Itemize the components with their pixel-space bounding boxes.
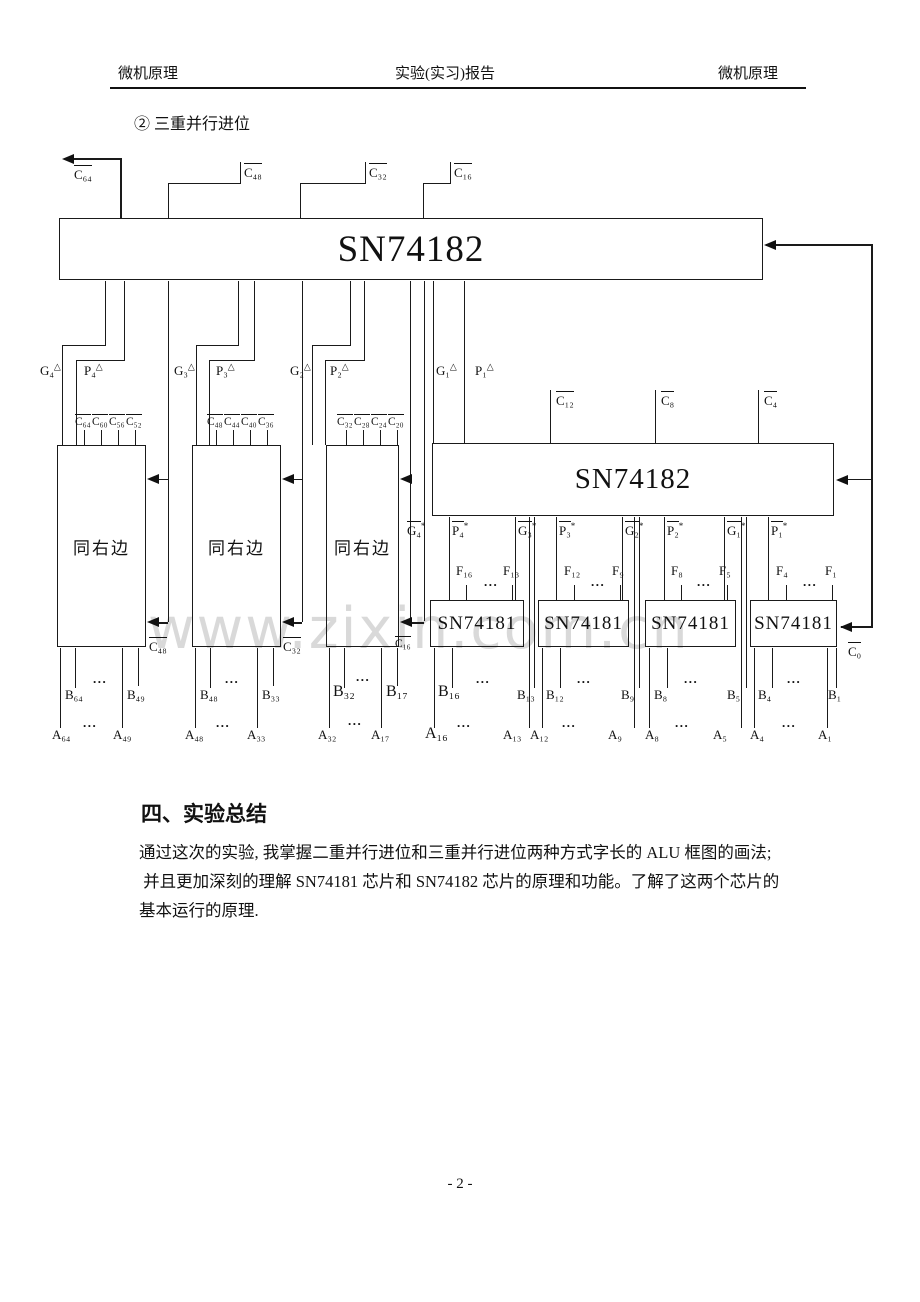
signal-label-p2: P₂△ <box>330 364 349 377</box>
wire-segment <box>397 648 398 686</box>
signal-label-f4: F₄ <box>776 564 788 577</box>
wire-segment <box>70 158 120 160</box>
wire-segment <box>325 360 326 445</box>
signal-text: B₃₂ <box>333 684 355 700</box>
signal-label-p1s: P₁* <box>771 521 787 537</box>
wire-segment <box>196 345 197 445</box>
chip-label: SN74181 <box>544 613 623 635</box>
signal-text: C₈ <box>661 391 674 407</box>
signal-text: G₃ <box>174 364 188 377</box>
chip-label: SN74181 <box>651 613 730 635</box>
signal-text: F₈ <box>671 564 683 577</box>
wire-segment <box>741 517 742 728</box>
block-label: 同右边 <box>208 534 265 559</box>
page-number: - 2 - <box>0 1176 920 1193</box>
signal-label-b32: B₃₂ <box>333 684 355 700</box>
header-right: 微机原理 <box>718 62 778 83</box>
chip-sn74181-2: SN74181 <box>538 600 629 647</box>
signal-text: G₄ <box>407 521 421 537</box>
wire-segment <box>550 390 551 443</box>
arrowhead-icon <box>147 474 159 484</box>
signal-label-b48: B₄₈ <box>200 688 218 701</box>
signal-text: P₁ <box>771 521 783 537</box>
signal-label-c56: C₅₆ <box>109 414 125 428</box>
wire-segment <box>620 585 621 600</box>
signal-mark: △ <box>304 362 311 372</box>
signal-text: F₅ <box>719 564 731 577</box>
signal-label-a32: A₃₂ <box>318 728 336 741</box>
signal-label-p4: P₄△ <box>84 364 103 377</box>
signal-label-c16t: C₁₆ <box>454 163 472 179</box>
wire-segment <box>423 183 451 184</box>
signal-label-b1: B₁ <box>828 688 841 701</box>
wire-segment <box>238 281 239 346</box>
wire-segment <box>786 585 787 600</box>
signal-label-c20: C₂₀ <box>388 414 404 428</box>
wire-segment <box>350 281 351 346</box>
wire-segment <box>233 430 234 445</box>
arrowhead-icon <box>836 475 848 485</box>
signal-text: P₃ <box>559 521 571 537</box>
signal-text: C₃₂ <box>337 414 353 428</box>
signal-label-c8: C₈ <box>661 391 674 407</box>
wire-segment <box>649 648 650 728</box>
wire-segment <box>836 648 837 688</box>
wire-segment <box>534 517 535 688</box>
signal-text: F₄ <box>776 564 788 577</box>
wire-segment <box>135 430 136 445</box>
wire-segment <box>312 345 313 445</box>
signal-text: C₂₄ <box>371 414 387 428</box>
wire-segment <box>380 430 381 445</box>
wire-segment <box>766 244 872 246</box>
signal-label-p3s: P₃* <box>559 521 575 537</box>
wire-segment <box>556 517 557 600</box>
signal-text: B₁₂ <box>546 688 564 701</box>
signal-text: A₁₃ <box>503 728 521 741</box>
signal-text: B₁ <box>828 688 841 701</box>
signal-label-a64: A₆₄ <box>52 728 70 741</box>
wire-segment <box>75 648 76 688</box>
signal-text: B₈ <box>654 688 667 701</box>
wire-segment <box>452 648 453 688</box>
ellipsis-label: ... <box>83 716 97 729</box>
wire-segment <box>449 517 450 600</box>
block-label: 同右边 <box>73 534 130 559</box>
wire-segment <box>138 648 139 686</box>
signal-mark: * <box>571 521 576 531</box>
signal-text: C₄ <box>764 391 777 407</box>
chip-sn74181-3: SN74181 <box>645 600 736 647</box>
arrowhead-icon <box>400 474 412 484</box>
wire-segment <box>464 281 465 443</box>
signal-text: B₅ <box>727 688 740 701</box>
wire-segment <box>312 345 351 346</box>
signal-text: G₁ <box>727 521 741 537</box>
signal-text: A₁₆ <box>425 726 448 742</box>
signal-label-a49: A₄₉ <box>113 728 131 741</box>
ellipsis-label: ... <box>803 575 817 588</box>
ellipsis-label: ... <box>484 575 498 588</box>
arrowhead-icon <box>62 154 74 164</box>
signal-text: B₆₄ <box>65 688 83 701</box>
wire-segment <box>168 183 169 218</box>
wire-segment <box>210 648 211 688</box>
wire-segment <box>62 345 106 346</box>
signal-label-c28: C₂₈ <box>354 414 370 428</box>
signal-text: A₈ <box>645 728 659 741</box>
signal-text: C₂₀ <box>388 414 404 428</box>
signal-text: A₃₂ <box>318 728 336 741</box>
signal-label-c40: C₄₀ <box>241 414 257 428</box>
wire-segment <box>300 183 301 218</box>
wire-segment <box>293 479 302 480</box>
ellipsis-label: ... <box>476 672 490 685</box>
signal-label-a4: A₄ <box>750 728 764 741</box>
wire-segment <box>466 585 467 600</box>
signal-label-p2s: P₂* <box>667 521 683 537</box>
header-center: 实验(实习)报告 <box>395 62 495 83</box>
wire-segment <box>62 345 63 445</box>
signal-label-b16: B₁₆ <box>438 684 460 700</box>
ellipsis-label: ... <box>356 670 370 683</box>
wire-segment <box>758 390 759 443</box>
wire-segment <box>450 162 451 183</box>
wire-segment <box>209 360 210 445</box>
signal-text: F₉ <box>612 564 624 577</box>
wire-segment <box>273 648 274 686</box>
signal-text: C₄₀ <box>241 414 257 428</box>
chip-label: SN74182 <box>338 228 485 271</box>
arrowhead-icon <box>147 617 159 627</box>
signal-label-c64: C₆₄ <box>74 165 92 181</box>
signal-label-a33: A₃₃ <box>247 728 265 741</box>
signal-label-f8: F₈ <box>671 564 683 577</box>
wire-segment <box>302 281 303 622</box>
signal-text: A₁ <box>818 728 832 741</box>
arrowhead-icon <box>840 622 852 632</box>
ellipsis-label: ... <box>697 575 711 588</box>
wire-segment <box>344 648 345 688</box>
signal-label-b13: B₁₃ <box>517 688 535 701</box>
signal-mark: * <box>639 521 644 531</box>
signal-text: C₆₄ <box>74 165 92 181</box>
wire-segment <box>832 585 833 600</box>
wire-segment <box>681 585 682 600</box>
signal-text: B₁₆ <box>438 684 460 700</box>
signal-label-a16: A₁₆ <box>425 726 448 742</box>
signal-text: G₃ <box>518 521 532 537</box>
signal-label-c24: C₂₄ <box>371 414 387 428</box>
wire-segment <box>397 430 398 445</box>
wire-segment <box>168 183 241 184</box>
wire-segment <box>574 585 575 600</box>
signal-mark: * <box>679 521 684 531</box>
subheading: ② 三重并行进位 <box>134 110 250 134</box>
signal-text: G₂ <box>290 364 304 377</box>
wire-segment <box>655 390 656 443</box>
signal-text: A₄₈ <box>185 728 203 741</box>
wire-segment <box>410 281 411 622</box>
wire-segment <box>411 622 424 624</box>
ellipsis-label: ... <box>348 714 362 727</box>
wire-segment <box>365 162 366 183</box>
signal-label-f16: F₁₆ <box>456 564 472 577</box>
signal-text: F₁₆ <box>456 564 472 577</box>
wire-segment <box>196 345 239 346</box>
arrowhead-icon <box>764 240 776 250</box>
wire-segment <box>300 183 366 184</box>
wire-segment <box>124 281 125 361</box>
header-left: 微机原理 <box>118 62 178 83</box>
signal-label-b33: B₃₃ <box>262 688 280 701</box>
signal-mark: * <box>783 521 788 531</box>
signal-text: A₃₃ <box>247 728 265 741</box>
signal-text: C₅₂ <box>126 414 142 428</box>
signal-text: P₄ <box>452 521 464 537</box>
signal-label-c32t: C₃₂ <box>369 163 387 179</box>
signal-text: A₁₇ <box>371 728 389 741</box>
summary-line: 通过这次的实验, 我掌握二重并行进位和三重并行进位两种方式字长的 ALU 框图的… <box>139 838 819 867</box>
wire-segment <box>754 648 755 728</box>
signal-label-g3: G₃△ <box>174 364 195 377</box>
signal-label-c48t: C₄₈ <box>244 163 262 179</box>
signal-label-c12: C₁₂ <box>556 391 574 407</box>
signal-text: A₄ <box>750 728 764 741</box>
signal-label-b8: B₈ <box>654 688 667 701</box>
signal-label-g4s: G₄* <box>407 521 425 537</box>
header-rule <box>110 87 806 89</box>
signal-text: G₁ <box>436 364 450 377</box>
signal-label-b64: B₆₄ <box>65 688 83 701</box>
signal-text: C₁₆ <box>454 163 472 179</box>
signal-text: C₄₄ <box>224 414 240 428</box>
signal-text: C₃₂ <box>283 637 301 653</box>
chip-label: SN74181 <box>754 613 833 635</box>
wire-segment <box>515 517 516 600</box>
signal-mark: △ <box>188 362 195 372</box>
signal-label-g3s: G₃* <box>518 521 536 537</box>
signal-label-g2s: G₂* <box>625 521 643 537</box>
signal-text: A₄₉ <box>113 728 131 741</box>
wire-segment <box>105 281 106 346</box>
wire-segment <box>120 158 122 218</box>
signal-label-a9: A₉ <box>608 728 622 741</box>
signal-text: A₆₄ <box>52 728 70 741</box>
wire-segment <box>76 360 77 445</box>
signal-text: P₁ <box>475 364 487 377</box>
wire-segment <box>216 430 217 445</box>
signal-text: B₉ <box>621 688 634 701</box>
wire-segment <box>329 648 330 728</box>
chip-sn74182-top: SN74182 <box>59 218 763 280</box>
signal-text: A₁₂ <box>530 728 548 741</box>
signal-text: B₁₇ <box>386 684 408 700</box>
wire-segment <box>122 648 123 728</box>
ellipsis-label: ... <box>216 716 230 729</box>
ellipsis-label: ... <box>591 575 605 588</box>
signal-text: C₆₀ <box>92 414 108 428</box>
signal-text: P₄ <box>84 364 96 377</box>
wire-segment <box>433 281 434 443</box>
signal-text: P₂ <box>667 521 679 537</box>
chip-sn74181-1: SN74181 <box>430 600 524 647</box>
signal-label-a8: A₈ <box>645 728 659 741</box>
signal-label-f5: F₅ <box>719 564 731 577</box>
signal-label-b5: B₅ <box>727 688 740 701</box>
signal-label-c16a: C₁₆ <box>395 636 411 650</box>
ellipsis-label: ... <box>457 716 471 729</box>
signal-text: C₄₈ <box>244 163 262 179</box>
ellipsis-label: ... <box>684 672 698 685</box>
signal-text: P₃ <box>216 364 228 377</box>
wire-segment <box>267 430 268 445</box>
signal-label-c32b: C₃₂ <box>337 414 353 428</box>
signal-text: A₅ <box>713 728 727 741</box>
ellipsis-label: ... <box>225 672 239 685</box>
signal-label-a5: A₅ <box>713 728 727 741</box>
signal-label-b49: B₄₉ <box>127 688 145 701</box>
signal-label-c4: C₄ <box>764 391 777 407</box>
signal-mark: △ <box>487 362 494 372</box>
signal-label-c48a: C₄₈ <box>149 637 167 653</box>
signal-label-c44: C₄₄ <box>224 414 240 428</box>
arrowhead-icon <box>400 617 412 627</box>
signal-mark: * <box>741 521 746 531</box>
signal-label-b17: B₁₇ <box>386 684 408 700</box>
ellipsis-label: ... <box>577 672 591 685</box>
signal-label-b4: B₄ <box>758 688 771 701</box>
wire-segment <box>727 585 728 600</box>
signal-text: B₄₈ <box>200 688 218 701</box>
wire-segment <box>434 648 435 728</box>
wire-segment <box>746 517 747 688</box>
signal-label-a48: A₄₈ <box>185 728 203 741</box>
wire-segment <box>168 281 169 622</box>
summary-line: 并且更加深刻的理解 SN74181 芯片和 SN74182 芯片的原理和功能。了… <box>139 867 819 896</box>
arrowhead-icon <box>282 474 294 484</box>
wire-segment <box>195 648 196 728</box>
signal-label-a17: A₁₇ <box>371 728 389 741</box>
signal-label-c36: C₃₆ <box>258 414 274 428</box>
block-label: 同右边 <box>334 534 391 559</box>
document-page: 微机原理 实验(实习)报告 微机原理 ② 三重并行进位 www.zixin.co… <box>0 0 920 1302</box>
signal-label-p1: P₁△ <box>475 364 494 377</box>
ellipsis-label: ... <box>675 716 689 729</box>
signal-mark: △ <box>228 362 235 372</box>
summary-paragraph: 通过这次的实验, 我掌握二重并行进位和三重并行进位两种方式字长的 ALU 框图的… <box>139 838 819 925</box>
wire-segment <box>871 244 873 628</box>
signal-text: C₅₆ <box>109 414 125 428</box>
signal-text: C₃₆ <box>258 414 274 428</box>
signal-label-f12: F₁₂ <box>564 564 580 577</box>
signal-label-f13: F₁₃ <box>503 564 519 577</box>
signal-label-f9: F₉ <box>612 564 624 577</box>
wire-segment <box>639 517 640 688</box>
signal-text: C₃₂ <box>369 163 387 179</box>
wire-segment <box>423 183 424 218</box>
signal-text: C₁₂ <box>556 391 574 407</box>
signal-label-p3: P₃△ <box>216 364 235 377</box>
signal-text: F₁₂ <box>564 564 580 577</box>
wire-segment <box>250 430 251 445</box>
wire-segment <box>560 648 561 688</box>
summary-heading: 四、实验总结 <box>141 798 267 828</box>
signal-label-c60: C₆₀ <box>92 414 108 428</box>
ellipsis-label: ... <box>93 672 107 685</box>
wire-segment <box>667 648 668 688</box>
ellipsis-label: ... <box>787 672 801 685</box>
signal-text: B₁₃ <box>517 688 535 701</box>
block-same-as-right-2: 同右边 <box>192 445 281 647</box>
signal-label-b12: B₁₂ <box>546 688 564 701</box>
signal-label-a1: A₁ <box>818 728 832 741</box>
wire-segment <box>768 517 769 600</box>
signal-label-a13: A₁₃ <box>503 728 521 741</box>
wire-segment <box>60 648 61 728</box>
arrowhead-icon <box>282 617 294 627</box>
signal-text: C₆₄ <box>75 414 91 428</box>
summary-line: 基本运行的原理. <box>139 896 819 925</box>
wire-segment <box>346 430 347 445</box>
signal-label-f1: F₁ <box>825 564 837 577</box>
signal-label-g2: G₂△ <box>290 364 311 377</box>
ellipsis-label: ... <box>562 716 576 729</box>
signal-label-p4s: P₄* <box>452 521 468 537</box>
chip-sn74181-4: SN74181 <box>750 600 837 647</box>
signal-text: A₉ <box>608 728 622 741</box>
signal-text: C₁₆ <box>395 636 411 650</box>
signal-mark: △ <box>54 362 61 372</box>
signal-label-g1s: G₁* <box>727 521 745 537</box>
wire-segment <box>240 162 241 183</box>
wire-segment <box>364 281 365 361</box>
chip-label: SN74181 <box>438 613 517 635</box>
chip-sn74182-mid: SN74182 <box>432 443 834 516</box>
signal-text: B₃₃ <box>262 688 280 701</box>
signal-label-c48b: C₄₈ <box>207 414 223 428</box>
chip-label: SN74182 <box>575 463 692 496</box>
signal-mark: △ <box>96 362 103 372</box>
signal-text: B₄ <box>758 688 771 701</box>
wire-segment <box>424 281 425 621</box>
signal-text: G₂ <box>625 521 639 537</box>
block-same-as-right-1: 同右边 <box>57 445 146 647</box>
wire-segment <box>257 648 258 728</box>
wire-segment <box>363 430 364 445</box>
signal-label-c52: C₅₂ <box>126 414 142 428</box>
signal-label-a12: A₁₂ <box>530 728 548 741</box>
signal-text: C₂₈ <box>354 414 370 428</box>
signal-text: B₄₉ <box>127 688 145 701</box>
wire-segment <box>622 517 623 600</box>
wire-segment <box>724 517 725 600</box>
signal-label-b9: B₉ <box>621 688 634 701</box>
signal-text: C₄₈ <box>149 637 167 653</box>
wire-segment <box>542 648 543 728</box>
signal-text: G₄ <box>40 364 54 377</box>
signal-label-c0: C₀ <box>848 642 861 658</box>
ellipsis-label: ... <box>782 716 796 729</box>
block-same-as-right-3: 同右边 <box>326 445 399 647</box>
signal-text: P₂ <box>330 364 342 377</box>
signal-mark: * <box>421 521 426 531</box>
signal-text: F₁₃ <box>503 564 519 577</box>
wire-segment <box>84 430 85 445</box>
wire-segment <box>512 585 513 600</box>
signal-mark: * <box>532 521 537 531</box>
wire-segment <box>118 430 119 445</box>
